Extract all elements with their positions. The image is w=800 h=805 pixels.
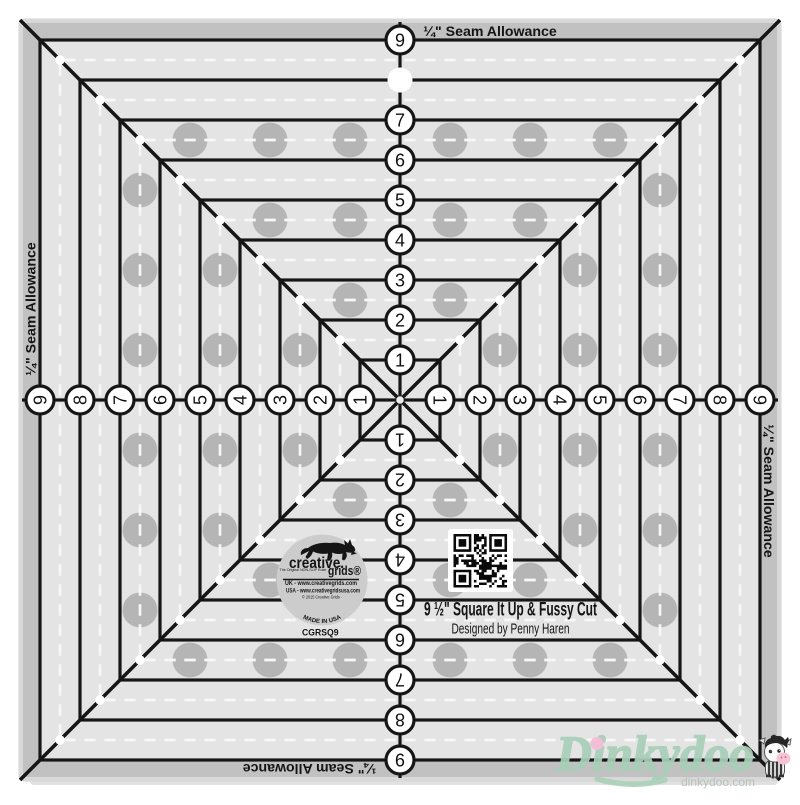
svg-text:3: 3 — [510, 395, 530, 405]
svg-text:9 ½" Square It Up & Fussy Cut: 9 ½" Square It Up & Fussy Cut — [424, 600, 597, 621]
svg-text:Designed by Penny Haren: Designed by Penny Haren — [452, 622, 570, 638]
svg-text:4: 4 — [395, 550, 405, 570]
svg-text:¼" Seam Allowance: ¼" Seam Allowance — [761, 424, 777, 558]
svg-text:4: 4 — [230, 395, 250, 405]
svg-text:¼" Seam Allowance: ¼" Seam Allowance — [243, 761, 377, 777]
svg-text:4: 4 — [395, 230, 405, 250]
svg-text:5: 5 — [190, 395, 210, 405]
svg-text:¼" Seam Allowance: ¼" Seam Allowance — [23, 242, 39, 376]
svg-text:7: 7 — [395, 110, 405, 130]
svg-text:9: 9 — [750, 395, 770, 405]
svg-text:2: 2 — [470, 395, 490, 405]
svg-text:The Original NON-SLIP Ruler: The Original NON-SLIP Ruler — [280, 568, 328, 572]
svg-text:5: 5 — [395, 590, 405, 610]
svg-text:9: 9 — [395, 30, 405, 50]
svg-text:8: 8 — [70, 395, 90, 405]
svg-text:7: 7 — [670, 395, 690, 405]
svg-text:USA - www.creativegridsusa.com: USA - www.creativegridsusa.com — [286, 588, 360, 595]
svg-text:1: 1 — [395, 350, 405, 370]
svg-text:2: 2 — [310, 395, 330, 405]
svg-text:1: 1 — [350, 395, 370, 405]
svg-text:grids®: grids® — [328, 563, 361, 578]
svg-text:¼" Seam Allowance: ¼" Seam Allowance — [423, 23, 557, 39]
svg-text:6: 6 — [630, 395, 650, 405]
svg-text:© 2015 Creative Grids ·: © 2015 Creative Grids · — [302, 595, 342, 600]
svg-text:5: 5 — [590, 395, 610, 405]
svg-text:7: 7 — [110, 395, 130, 405]
svg-text:dinkydoo.com: dinkydoo.com — [681, 775, 755, 789]
svg-text:8: 8 — [395, 710, 405, 730]
svg-text:CGRSQ9: CGRSQ9 — [302, 628, 339, 639]
svg-text:8: 8 — [710, 395, 730, 405]
svg-text:4: 4 — [550, 395, 570, 405]
svg-text:3: 3 — [270, 395, 290, 405]
svg-text:1: 1 — [395, 430, 405, 450]
svg-text:1: 1 — [430, 395, 450, 405]
svg-text:Dinkydoo: Dinkydoo — [555, 725, 754, 781]
svg-text:6: 6 — [395, 630, 405, 650]
svg-text:6: 6 — [150, 395, 170, 405]
svg-text:5: 5 — [395, 190, 405, 210]
svg-text:9: 9 — [395, 750, 405, 770]
svg-text:2: 2 — [395, 310, 405, 330]
svg-text:2: 2 — [395, 470, 405, 490]
svg-text:UK - www.creativegrids.com: UK - www.creativegrids.com — [285, 580, 357, 587]
svg-text:7: 7 — [395, 670, 405, 690]
svg-text:6: 6 — [395, 150, 405, 170]
svg-text:3: 3 — [395, 510, 405, 530]
svg-text:3: 3 — [395, 270, 405, 290]
svg-text:9: 9 — [30, 395, 50, 405]
